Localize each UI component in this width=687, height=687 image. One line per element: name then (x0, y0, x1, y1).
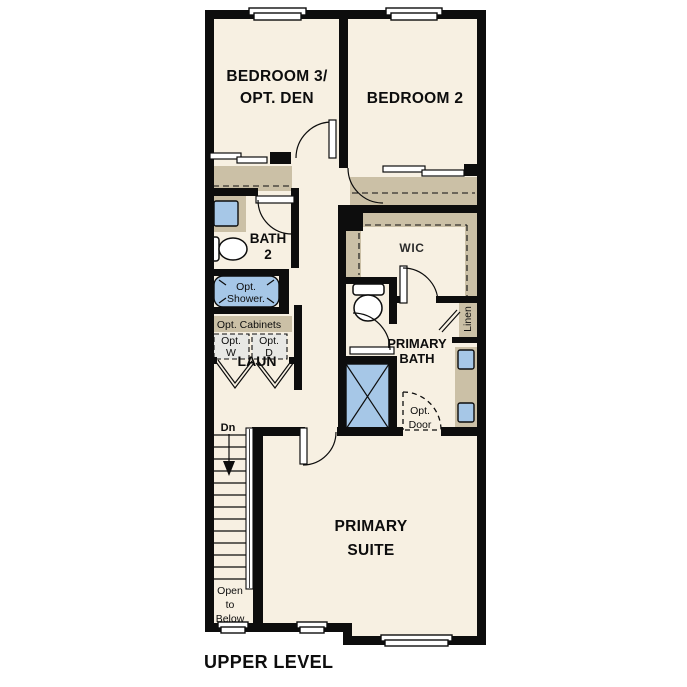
wall-stairs-east (253, 427, 263, 632)
wall-wic-south-right (436, 296, 477, 303)
wall-laundry-jamb-left (210, 357, 217, 364)
linen-label: Linen (462, 306, 474, 332)
wall-hall-east (338, 231, 346, 364)
primary-suite-label-line2: SUITE (347, 542, 394, 559)
wall-bedroom2-closet-south (346, 205, 477, 213)
plan-title: UPPER LEVEL (204, 652, 333, 672)
bedroom2-closet-shelf (350, 177, 477, 207)
wall-exterior-top (205, 10, 486, 19)
bedroom2-label: BEDROOM 2 (367, 90, 464, 107)
opt-shower-label-line2: Shower. (227, 293, 265, 305)
wall-bedroom-divider (339, 19, 348, 168)
open-below-label-line2: to (226, 599, 235, 611)
wall-bath2-north (205, 188, 258, 196)
bedroom3-closet-shelf (210, 166, 292, 191)
wall-linen-south (452, 337, 477, 343)
primary-toilet-bowl (354, 295, 382, 321)
bath2-label-line2: 2 (264, 247, 272, 262)
opt-shower-label-line1: Opt. (236, 281, 256, 293)
wall-shower-west (338, 356, 346, 430)
primary-sink-1 (458, 350, 474, 369)
open-below-label-line1: Open (217, 585, 243, 597)
wall-exterior-left (205, 10, 214, 632)
floor-plan-drawing: BEDROOM 3/ OPT. DEN BEDROOM 2 BATH 2 Opt… (0, 0, 687, 687)
wall-suite-north-mid (337, 427, 403, 436)
wall-bedroom3-south-stub (270, 152, 291, 164)
open-below-label-line3: Below (216, 613, 245, 625)
opt-door-label-line2: Door (409, 419, 432, 431)
wall-shower2-south (205, 307, 289, 314)
window-suite-left (297, 622, 327, 633)
opt-washer-label-line2: W (226, 347, 236, 359)
bath2-toilet-bowl (219, 238, 247, 260)
wall-bedroom2-closet-stub (464, 164, 477, 176)
bedroom3-label-line2: OPT. DEN (240, 90, 314, 107)
opt-dryer-label-line1: Opt. (259, 335, 279, 347)
primary-bath-label-line2: BATH (399, 351, 434, 366)
bath2-label-line1: BATH (250, 231, 287, 246)
wall-shower2-north (205, 269, 289, 276)
bath2-sink (214, 201, 238, 226)
opt-cabinets-label: Opt. Cabinets (217, 319, 281, 331)
opt-washer-label-line1: Opt. (221, 335, 241, 347)
wall-wc-north (338, 277, 397, 284)
wall-suite-north-right (441, 427, 486, 436)
wall-suite-north-left (252, 427, 305, 436)
floor-plan-page: BEDROOM 3/ OPT. DEN BEDROOM 2 BATH 2 Opt… (0, 0, 687, 687)
opt-door-label-line1: Opt. (410, 405, 430, 417)
wall-shower-north (338, 356, 397, 364)
wic-label: WIC (399, 241, 424, 255)
primary-toilet-tank (353, 284, 384, 295)
bedroom3-label-line1: BEDROOM 3/ (226, 68, 328, 85)
wall-laundry-east (294, 305, 302, 390)
wall-exterior-right (477, 10, 486, 645)
window-bedroom2 (386, 8, 442, 20)
window-suite-main (381, 635, 452, 646)
window-bedroom3 (249, 8, 306, 20)
wall-shower-east (389, 356, 397, 430)
primary-bath-label-line1: PRIMARY (387, 336, 447, 351)
primary-suite-label-line1: PRIMARY (334, 518, 407, 535)
laundry-label: LAUN (238, 353, 277, 369)
wall-wic-corner-chunk (338, 205, 363, 231)
primary-sink-2 (458, 403, 474, 422)
stairs-down-label: Dn (221, 422, 236, 434)
